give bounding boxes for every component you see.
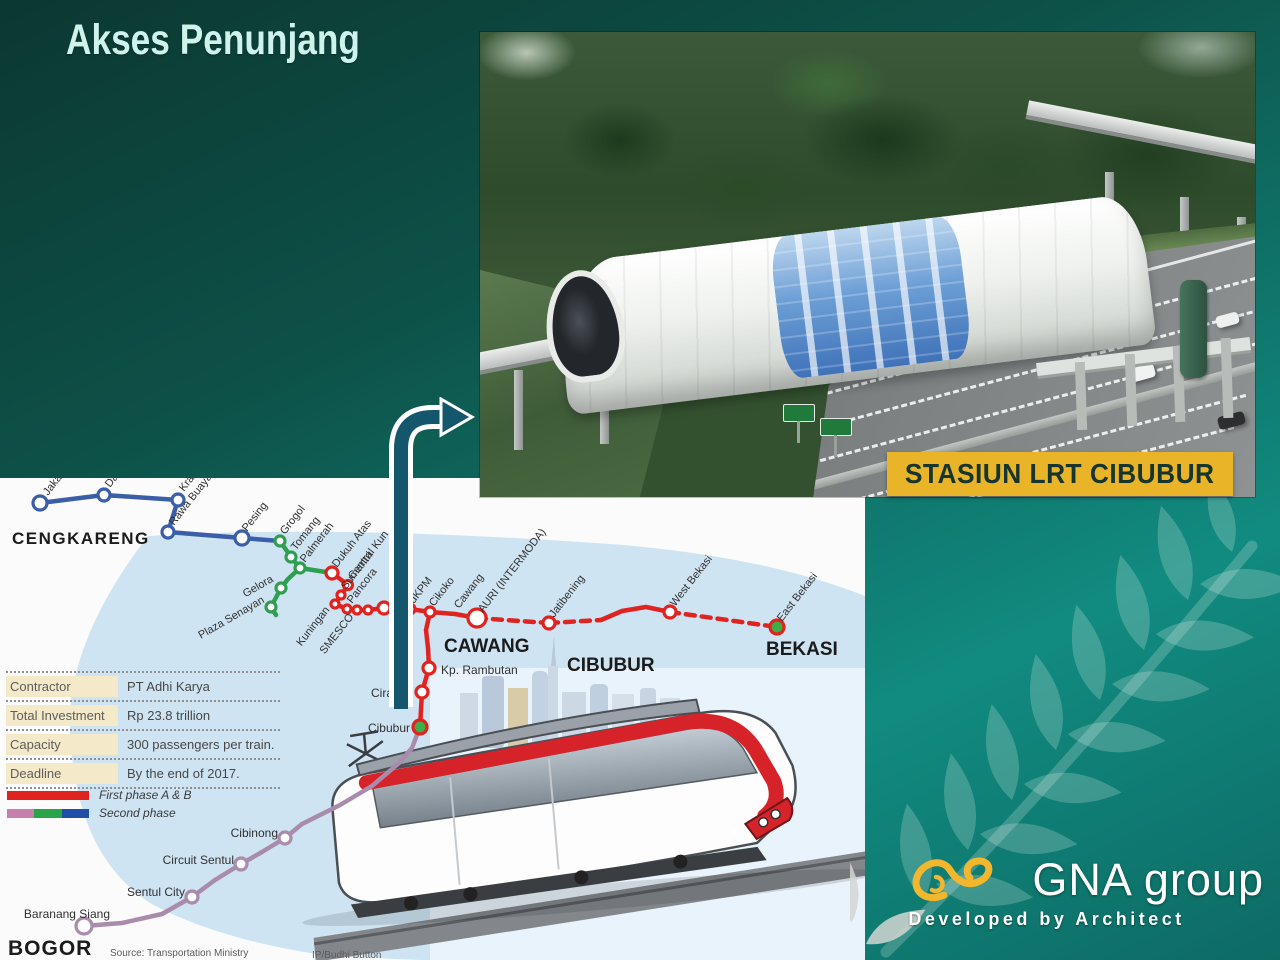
station-dot — [33, 496, 47, 510]
legend-color-segment — [7, 809, 34, 818]
station-dot — [186, 891, 198, 903]
info-row: ContractorPT Adhi Karya — [6, 671, 280, 700]
legend-item: Second phase — [7, 806, 191, 820]
station-dot — [98, 489, 110, 501]
info-row: Total InvestmentRp 23.8 trillion — [6, 700, 280, 729]
info-label: Capacity — [6, 734, 118, 755]
station-roof-blue-panels — [768, 215, 973, 380]
station-dot — [543, 617, 555, 629]
station-dot — [235, 858, 247, 870]
legend-color-segment — [7, 791, 89, 800]
presentation-slide: Akses Penunjang — [0, 0, 1280, 960]
station-dot — [331, 600, 339, 608]
station-dot — [279, 832, 291, 844]
station-label: Cibinong — [231, 826, 278, 840]
station-dot — [326, 567, 338, 579]
highway-sign — [783, 404, 815, 422]
station-dot — [275, 536, 285, 546]
info-value: PT Adhi Karya — [118, 676, 280, 697]
gna-logo: GNA group Developed by Architect — [908, 853, 1264, 930]
station-dot — [286, 552, 296, 562]
info-label: Total Investment — [6, 705, 118, 726]
station-label: BOGOR — [8, 937, 92, 960]
station-label: Pesing — [240, 500, 270, 534]
station-dot — [413, 720, 427, 734]
station-label: BEKASI — [766, 639, 838, 660]
slide-title: Akses Penunjang — [66, 16, 360, 65]
station-photo — [480, 32, 1255, 497]
legend-color-segment — [34, 809, 61, 818]
station-label: Cibubur — [368, 721, 410, 735]
callout-arrow — [383, 397, 475, 709]
station-dot — [353, 606, 361, 614]
station-dot — [337, 591, 345, 599]
station-dot — [266, 602, 276, 612]
photo-caption-banner: STASIUN LRT CIBUBUR — [887, 452, 1233, 496]
station-label: Source: Transportation Ministry — [110, 948, 248, 959]
info-row: Capacity300 passengers per train. — [6, 729, 280, 758]
legend-label: First phase A & B — [99, 788, 191, 802]
highway-sign — [820, 418, 852, 436]
info-table: ContractorPT Adhi KaryaTotal InvestmentR… — [6, 671, 280, 789]
station-dot — [295, 563, 305, 573]
station-label: Baranang Siang — [24, 907, 110, 921]
legend-color-bar — [7, 809, 89, 818]
station-label: CIBUBUR — [567, 655, 655, 676]
station-label: Jakar — [41, 478, 67, 498]
station-label: CENGKARENG — [12, 529, 150, 548]
legend-item: First phase A & B — [7, 788, 191, 802]
station-dot — [162, 526, 174, 538]
legend-label: Second phase — [99, 806, 176, 820]
station-label: Sentul City — [127, 885, 185, 899]
gna-swirl-icon — [908, 853, 1020, 907]
station-dot — [664, 606, 676, 618]
white-car — [1215, 311, 1240, 329]
logo-name: GNA group — [1032, 854, 1264, 906]
guideway-pier — [514, 370, 523, 450]
station-dot — [276, 583, 286, 593]
station-label: IP/Budhi Button — [312, 950, 382, 960]
legend-color-bar — [7, 791, 89, 800]
info-value: Rp 23.8 trillion — [118, 705, 280, 726]
info-row: DeadlineBy the end of 2017. — [6, 758, 280, 789]
station-dot — [364, 606, 372, 614]
legend-color-segment — [62, 809, 89, 818]
info-label: Contractor — [6, 676, 118, 697]
info-label: Deadline — [6, 763, 118, 784]
info-value: By the end of 2017. — [118, 763, 280, 784]
photo-caption: STASIUN LRT CIBUBUR — [905, 458, 1215, 490]
green-tank — [1180, 280, 1207, 378]
station-label: Circuit Sentul — [163, 853, 234, 867]
logo-tagline: Developed by Architect — [908, 909, 1264, 930]
info-value: 300 passengers per train. — [118, 734, 280, 755]
map-legend: First phase A & BSecond phase — [7, 788, 191, 824]
